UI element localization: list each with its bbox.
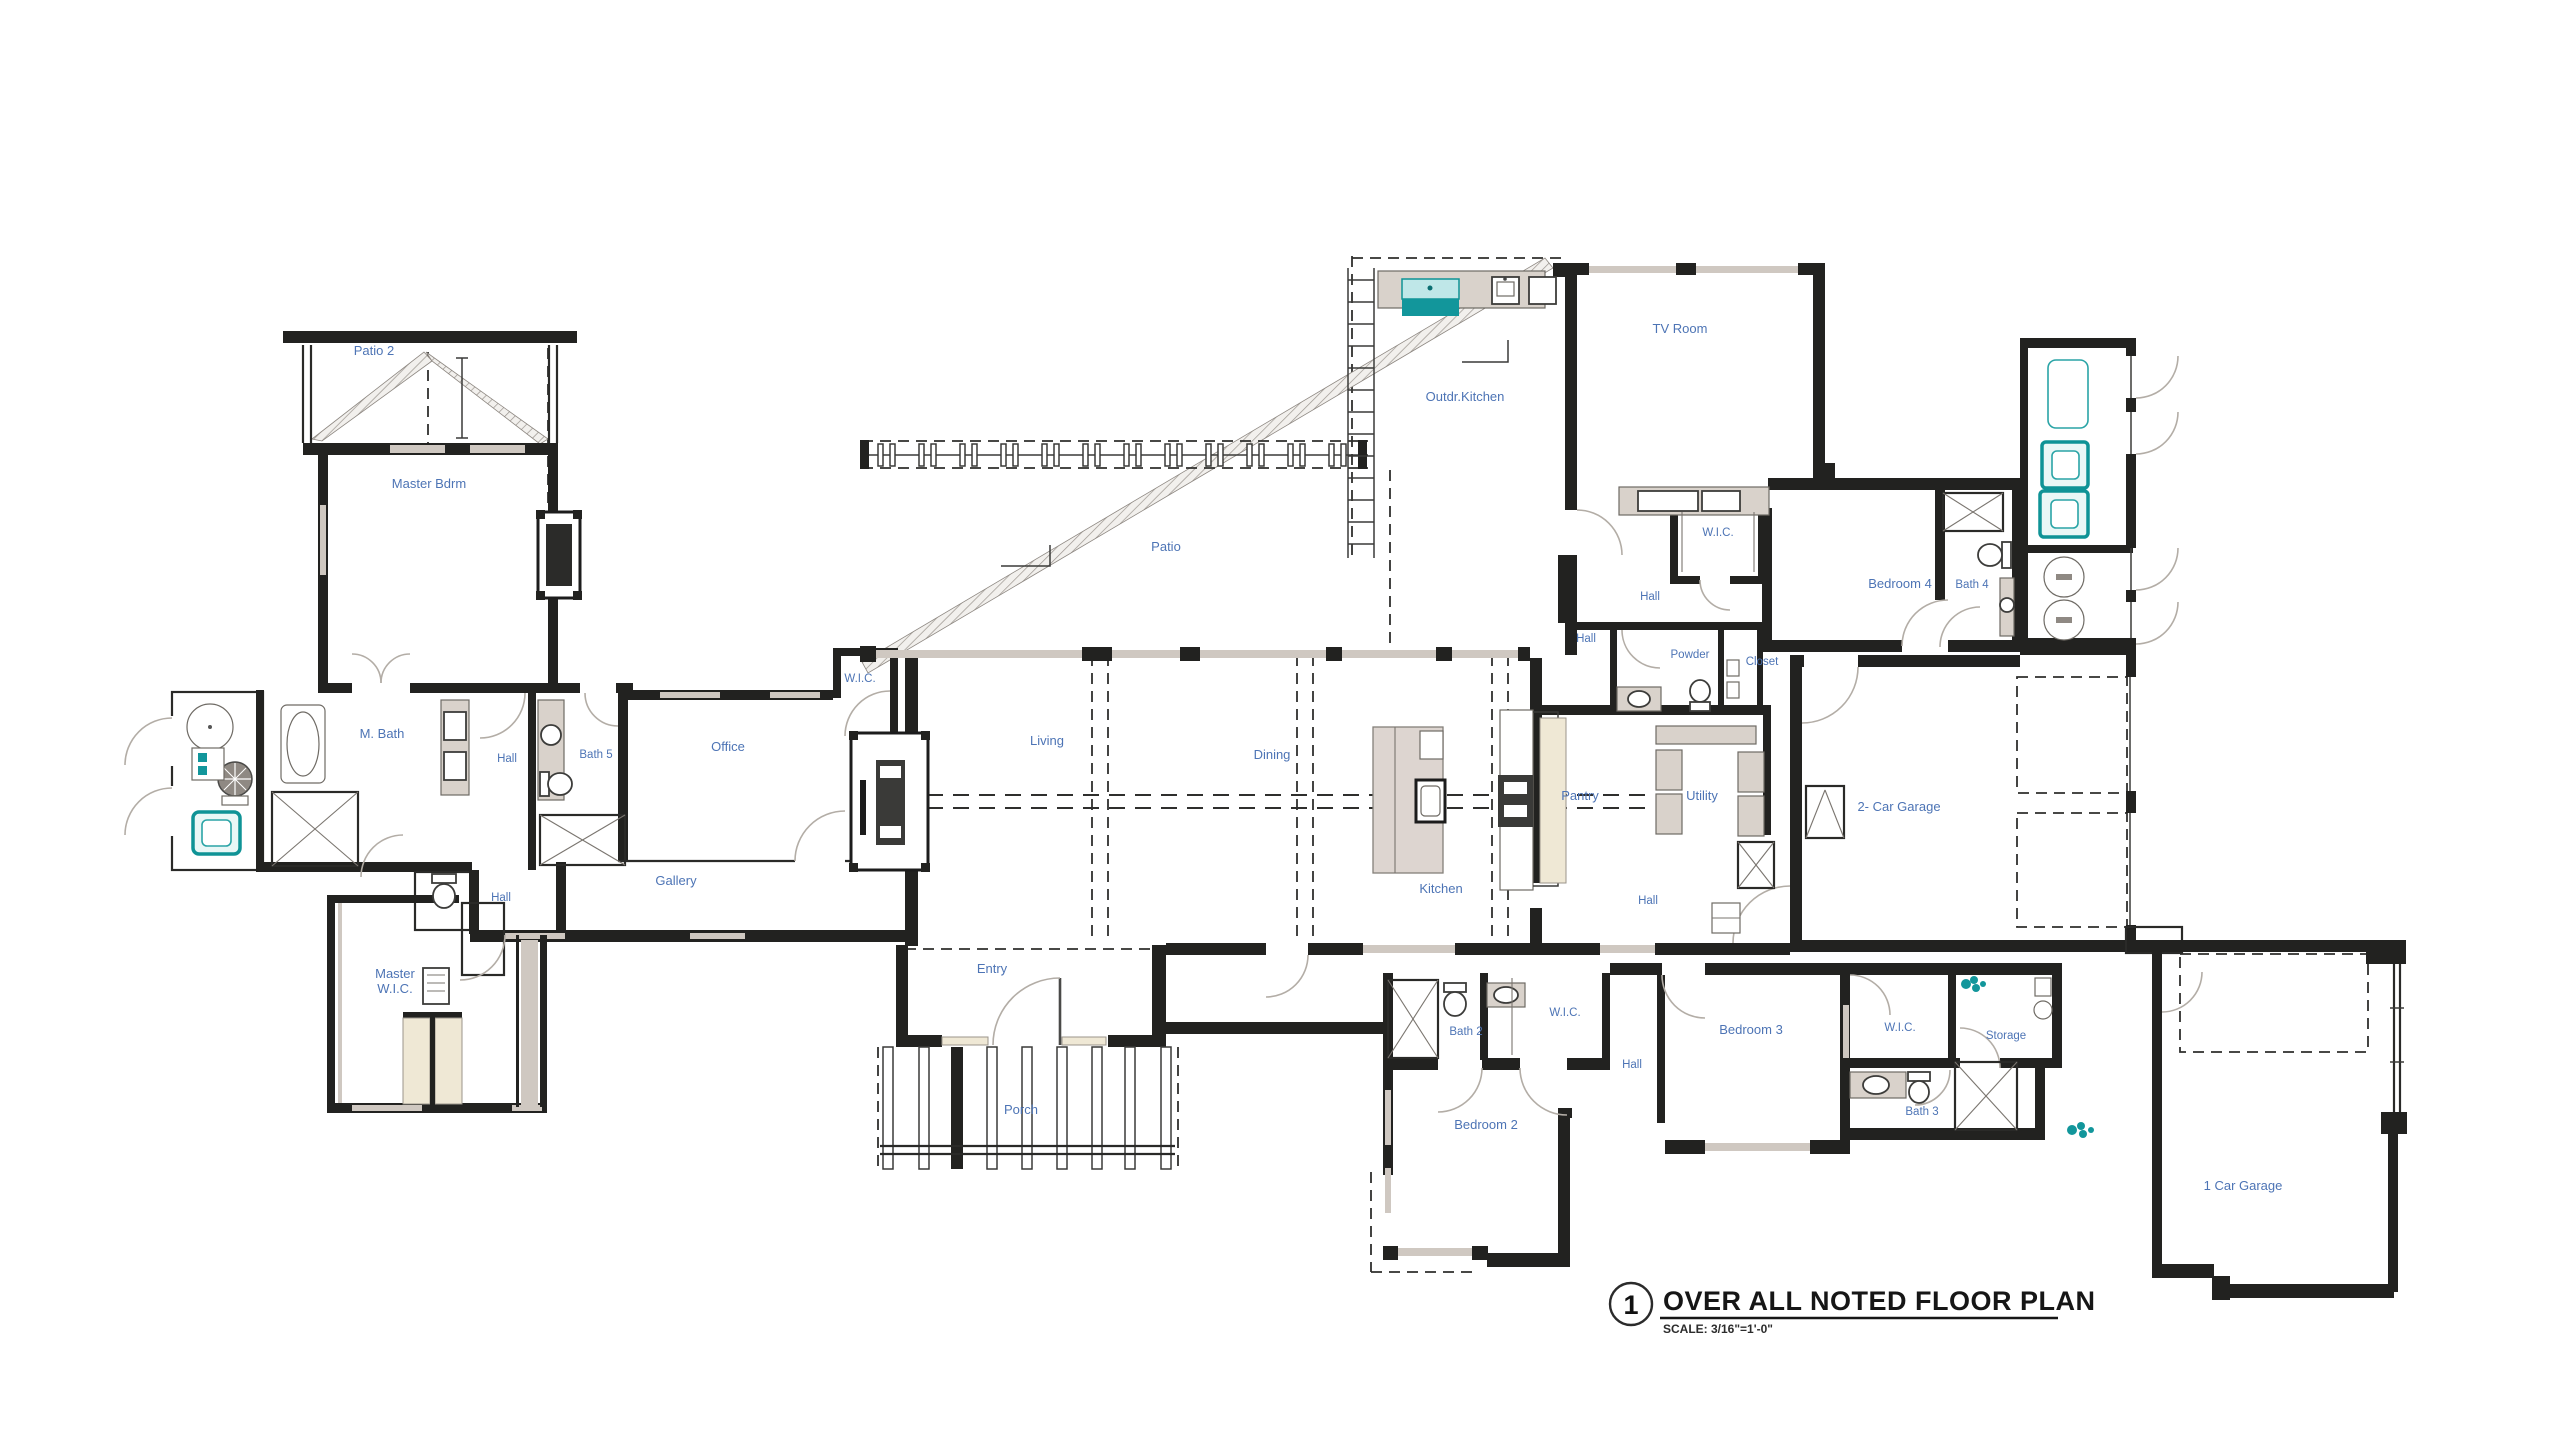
room-label-wic-office: W.I.C. (844, 673, 875, 685)
room-label-outdr-kitchen: Outdr.Kitchen (1426, 389, 1505, 404)
room-label-wic-bed3: W.I.C. (1884, 1022, 1915, 1034)
vanity-icon (1850, 1072, 1906, 1098)
room-label-dining: Dining (1254, 747, 1291, 762)
closet-icon (403, 1012, 462, 1106)
toilet-icon (1444, 983, 1466, 1016)
toilet-icon (1908, 1072, 1930, 1103)
room-label-utility: Utility (1686, 788, 1718, 803)
room-label-hall-master: Hall (497, 753, 517, 765)
vanity-icon (1617, 687, 1661, 711)
room-label-tv-room: TV Room (1653, 321, 1708, 336)
round-stool-icon (2044, 557, 2084, 597)
sheet-scale: SCALE: 3/16"=1'-0" (1663, 1322, 1773, 1336)
room-label-master-wic-line1: Master (375, 966, 415, 981)
car-stall-icon (2017, 677, 2127, 793)
room-label-hall-center: Hall (1576, 633, 1596, 645)
room-label-living: Living (1030, 733, 1064, 748)
floor-plan-drawing: Patio 2 Master Bdrm M. Bath Hall Bath 5 … (0, 0, 2560, 1440)
wic-island-icon (423, 968, 449, 1004)
shower-icon (1943, 493, 2003, 531)
media-builtin-icon (1619, 487, 1769, 515)
room-label-gallery: Gallery (655, 873, 697, 888)
room-label-porch: Porch (1004, 1102, 1038, 1117)
room-label-closet: Closet (1746, 656, 1779, 668)
shower-icon (1955, 1062, 2017, 1130)
casement-window-icon (1806, 786, 1844, 838)
room-label-storage: Storage (1986, 1030, 2026, 1042)
plant-icon (1961, 976, 1986, 992)
spa-tub-icon (2040, 491, 2088, 537)
vanity-icon (2000, 578, 2014, 636)
room-label-hall-kitchen: Hall (1638, 895, 1658, 907)
shower-icon (540, 815, 625, 865)
fixtures (187, 271, 2094, 1169)
detail-number: 1 (1623, 1290, 1638, 1320)
room-label-bedroom-2: Bedroom 2 (1454, 1117, 1518, 1132)
patio-pergola-strip (860, 440, 1368, 469)
room-label-bath-4: Bath 4 (1955, 579, 1989, 591)
washer-dryer-icon (1656, 726, 1764, 836)
toilet-icon (540, 772, 572, 796)
room-label-office: Office (711, 739, 745, 754)
room-label-bath-3: Bath 3 (1905, 1106, 1938, 1118)
room-label-powder: Powder (1671, 649, 1710, 661)
tub-icon (281, 705, 325, 783)
spa-tub-icon (2042, 442, 2088, 488)
utility-closet-icon (1738, 842, 1774, 888)
car-stall-icon (2180, 954, 2368, 1052)
room-label-wic-bed2: W.I.C. (1549, 1007, 1580, 1019)
kitchen-island-icon (1373, 727, 1445, 873)
room-label-kitchen: Kitchen (1419, 881, 1462, 896)
room-label-bedroom-4: Bedroom 4 (1868, 576, 1932, 591)
room-label-hall-bedwing: Hall (1622, 1059, 1642, 1071)
grill-icon (1402, 279, 1459, 316)
shower-icon (1388, 980, 1438, 1058)
double-vanity-icon (441, 700, 469, 795)
sheet-title: OVER ALL NOTED FLOOR PLAN (1663, 1286, 2096, 1316)
toilet-icon (432, 874, 456, 908)
title-block: 1 OVER ALL NOTED FLOOR PLAN SCALE: 3/16"… (1610, 1283, 2096, 1336)
toilet-icon (1690, 680, 1710, 711)
room-label-entry: Entry (977, 961, 1008, 976)
sink-icon (1416, 780, 1445, 822)
room-label-hall-master-lower: Hall (491, 892, 511, 904)
plant-icon (2067, 1122, 2094, 1138)
room-label-patio-2: Patio 2 (354, 343, 394, 358)
vanity-icon (1487, 983, 1525, 1007)
room-label-m-bath: M. Bath (360, 726, 405, 741)
room-label-wic-bed4: W.I.C. (1702, 527, 1733, 539)
room-label-patio: Patio (1151, 539, 1181, 554)
tub-icon (2048, 360, 2088, 428)
room-label-master-wic-line2: W.I.C. (377, 981, 412, 996)
room-label-1-car-garage: 1 Car Garage (2204, 1178, 2283, 1193)
fireplace-icon (536, 510, 582, 600)
round-stool-icon (2044, 600, 2084, 640)
room-label-master-bdrm: Master Bdrm (392, 476, 466, 491)
room-label-bath-5: Bath 5 (579, 749, 612, 761)
car-stall-icon (2017, 813, 2127, 927)
room-label-hall-bed4: Hall (1640, 591, 1660, 603)
spa-equipment-icon (192, 748, 224, 780)
room-label-pantry: Pantry (1561, 788, 1599, 803)
fireplace-icon (849, 731, 930, 872)
toilet-icon (1978, 542, 2011, 568)
sink-icon (1492, 277, 1519, 304)
shower-icon (272, 792, 358, 866)
floor-plan-sheet: Patio 2 Master Bdrm M. Bath Hall Bath 5 … (0, 0, 2560, 1440)
slope-direction-mark (1462, 340, 1508, 362)
dimension-mark (456, 358, 468, 438)
room-label-bedroom-3: Bedroom 3 (1719, 1022, 1783, 1037)
room-label-2-car-garage: 2- Car Garage (1857, 799, 1940, 814)
room-label-bath-2: Bath 2 (1449, 1026, 1482, 1038)
